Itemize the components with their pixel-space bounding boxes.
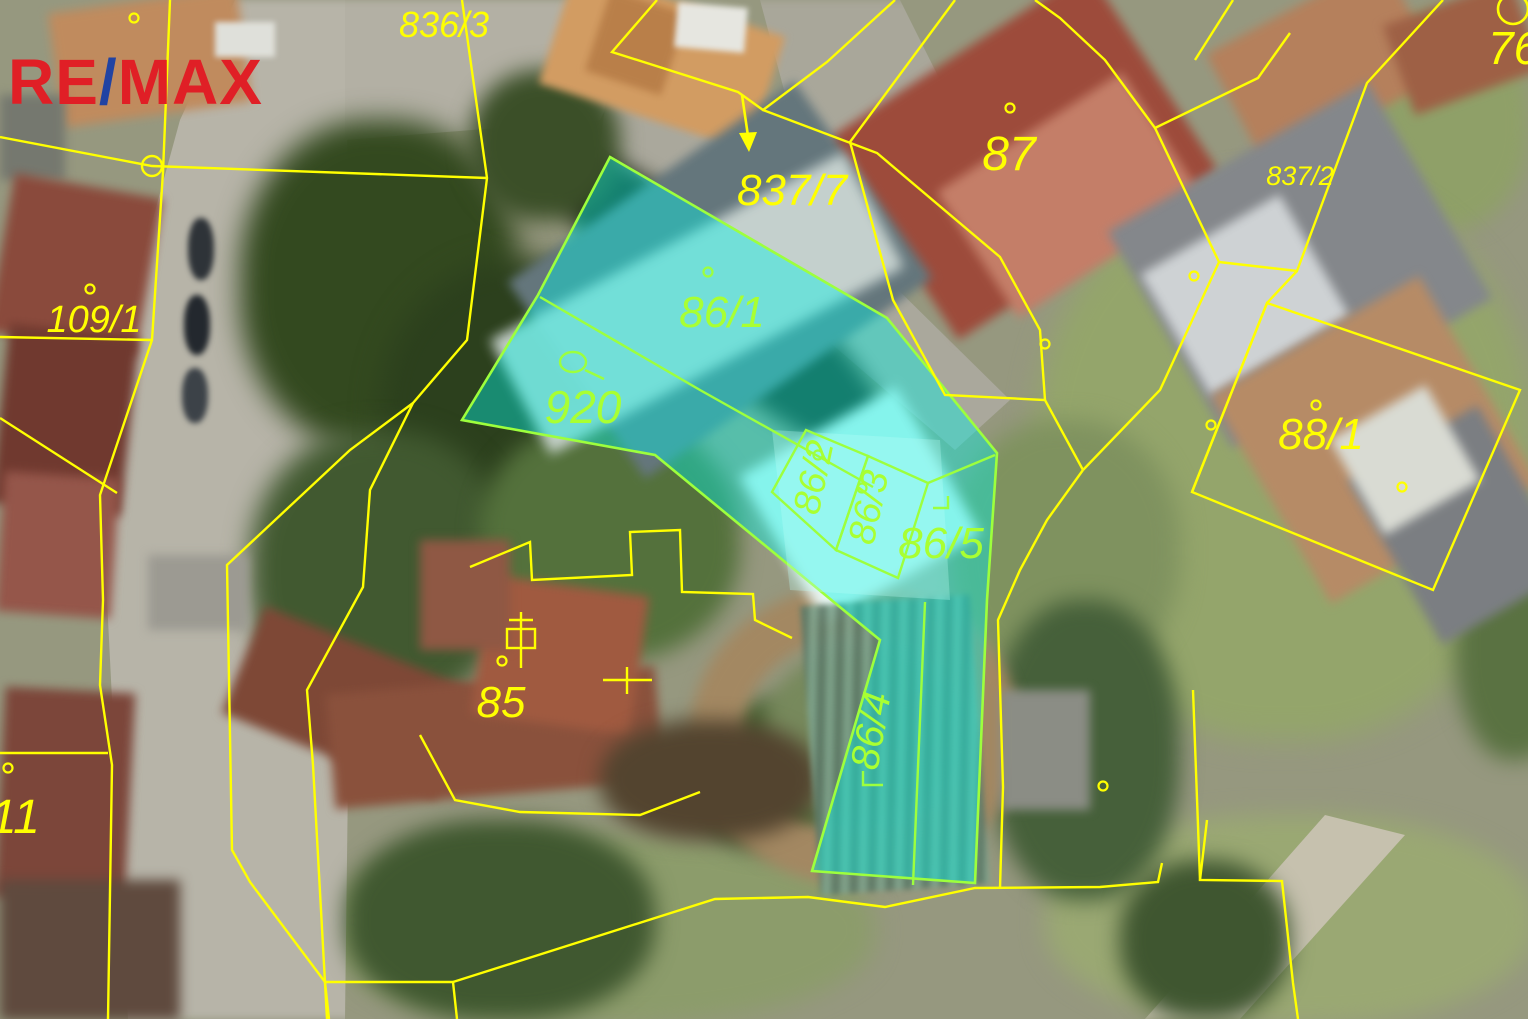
parcel-dot-mid-2 [1207,421,1216,430]
boundary-bottom-small [325,982,457,1019]
boundary-topleft-diagonal [0,137,487,178]
boundary-left-vertical [100,0,170,1019]
parcel-label-836-3: 836/3 [399,4,489,45]
boundary-castle-south [420,735,700,815]
parcel-label-920: 920 [545,381,622,433]
parcel-dot-87 [1006,104,1015,113]
parcel-dot-85 [498,657,507,666]
parcel-dot-837-2 [1190,272,1199,281]
parcel-label-109-1: 109/1 [46,299,141,341]
parcel-label-761: 761 [1488,22,1528,74]
remax-logo-slash: / [99,46,118,118]
parcel-label-85: 85 [477,678,526,727]
boundary-87-east [1035,0,1219,470]
remax-logo: RE/MAX [8,50,263,114]
parcel-label-88-1: 88/1 [1278,410,1364,459]
arrow-837-7-head [739,132,757,152]
parcel-dot-garden [1099,782,1108,791]
map-viewport: 836/3 761 837/7 87 837/2 109/1 11 85 88/… [0,0,1528,1019]
boundary-bottom-long [453,863,1162,982]
arrow-837-7-shaft [742,95,748,136]
boundary-837-2-west [1155,33,1290,128]
remax-logo-re: RE [8,46,99,118]
boundary-garden-east [1193,690,1200,880]
remax-logo-max: MAX [118,46,263,118]
boundary-castle-north [470,530,792,638]
circle-symbol-topright [1498,0,1528,24]
boundary-tr-short [1195,0,1233,60]
parcel-dot-11 [4,764,13,773]
boundary-street-east [307,0,487,1019]
boundary-bottomright [1200,820,1298,1019]
parcel-dot-88-1 [1312,401,1321,410]
parcel-dot-lawn [1398,483,1407,492]
parcel-label-86-5: 86/5 [898,519,984,568]
parcel-label-87: 87 [982,128,1038,181]
parcel-label-837-7: 837/7 [737,166,849,215]
parcel-label-11: 11 [0,791,40,844]
cadastral-overlay: 836/3 761 837/7 87 837/2 109/1 11 85 88/… [0,0,1528,1019]
boundary-86-5-east [998,470,1083,888]
parcel-dot-109-1 [86,285,95,294]
boundary-837-2-east [1219,0,1443,271]
boundary-109-1-south [0,418,117,493]
boundary-castle-west [227,403,413,1019]
boundary-836-3-south [612,0,895,110]
parcel-label-86-1: 86/1 [679,288,765,337]
parcel-label-837-2: 837/2 [1266,161,1334,191]
parcel-dot-836-3 [130,14,139,23]
